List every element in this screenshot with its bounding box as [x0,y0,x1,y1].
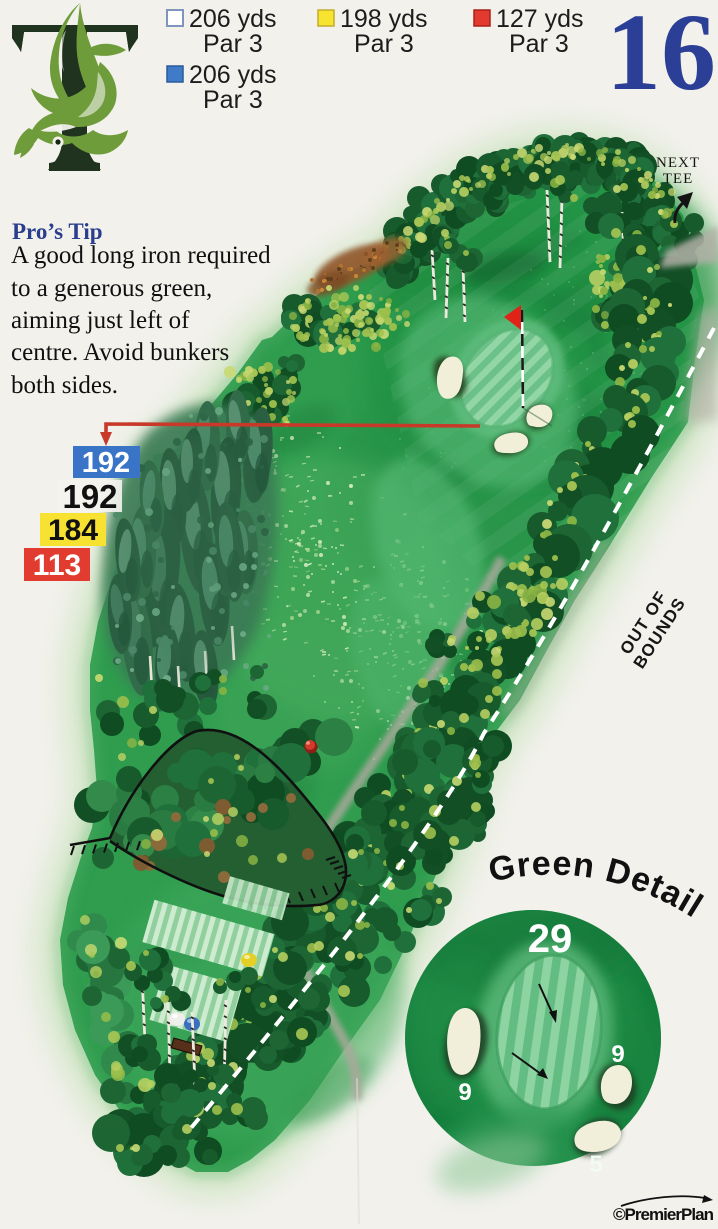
svg-text:centre. Avoid bunkers: centre. Avoid bunkers [11,339,229,366]
svg-text:Par 3: Par 3 [203,86,263,114]
svg-text:206 yds: 206 yds [189,61,277,89]
svg-text:both sides.: both sides. [11,372,118,399]
svg-text:113: 113 [33,549,81,582]
svg-text:Par 3: Par 3 [509,30,569,58]
svg-text:Pro’s Tip: Pro’s Tip [12,219,103,244]
svg-text:Par 3: Par 3 [354,30,414,58]
svg-text:9: 9 [458,1079,471,1106]
svg-text:©PremierPlan: ©PremierPlan [613,1205,714,1224]
svg-text:NEXT: NEXT [656,155,700,171]
svg-text:A good long iron required: A good long iron required [11,242,271,269]
svg-text:192: 192 [82,447,130,479]
svg-text:192: 192 [62,478,117,515]
svg-text:184: 184 [48,514,98,547]
svg-text:Par 3: Par 3 [203,30,263,58]
svg-text:16: 16 [606,0,716,113]
svg-text:5: 5 [589,1151,602,1178]
svg-text:198 yds: 198 yds [340,5,428,33]
svg-text:TEE: TEE [663,171,694,187]
svg-text:to a generous green,: to a generous green, [11,275,212,302]
svg-text:9: 9 [611,1041,624,1068]
svg-text:aiming just left of: aiming just left of [11,307,190,334]
svg-text:127 yds: 127 yds [496,5,584,33]
svg-text:29: 29 [528,917,573,961]
svg-text:206 yds: 206 yds [189,5,277,33]
